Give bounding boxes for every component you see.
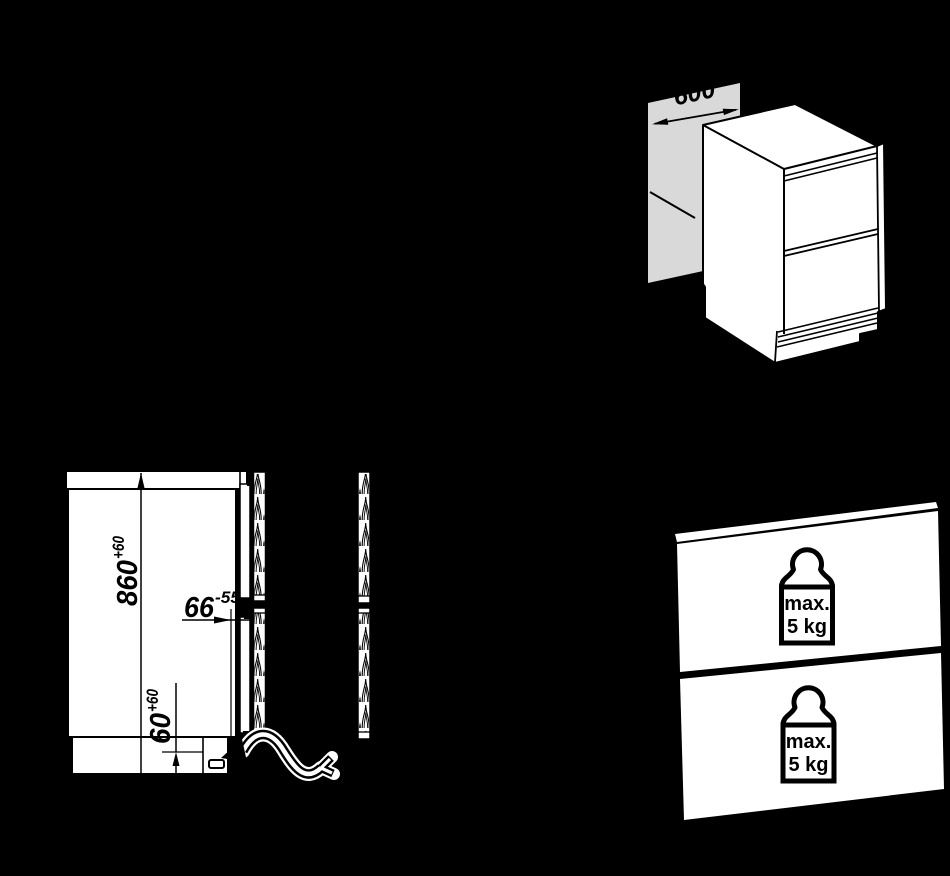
- installation-diagram-page: 600: [0, 0, 950, 876]
- bracket-block-mid-1: [244, 602, 252, 610]
- bracket-block-mid-2: [244, 611, 252, 619]
- power-cable-arrow-icon: [221, 735, 334, 775]
- weight-amount-label: 5 kg: [787, 616, 827, 638]
- upper-door-bracket: [240, 484, 250, 598]
- side-elevation: 860+60 66-55 60+60: [66, 471, 334, 777]
- loose-front-panels-side-view: [358, 472, 370, 739]
- worktop: [66, 471, 247, 489]
- mains-connection-socket: [209, 760, 224, 768]
- front-panel-weight-view: max. 5 kg max. 5 kg: [675, 502, 944, 820]
- isometric-view: 600: [648, 75, 886, 363]
- loose-front-panel-upper: [358, 472, 370, 603]
- loose-front-panel-lower: [358, 608, 370, 739]
- mounted-front-panel-upper: [254, 472, 266, 601]
- mounted-front-panel-lower: [254, 608, 266, 739]
- weight-max-label: max.: [786, 731, 832, 753]
- diagram-canvas: 600: [0, 0, 950, 876]
- lower-door-bracket: [240, 617, 250, 733]
- weight-amount-label: 5 kg: [788, 754, 828, 776]
- weight-max-label: max.: [784, 593, 830, 615]
